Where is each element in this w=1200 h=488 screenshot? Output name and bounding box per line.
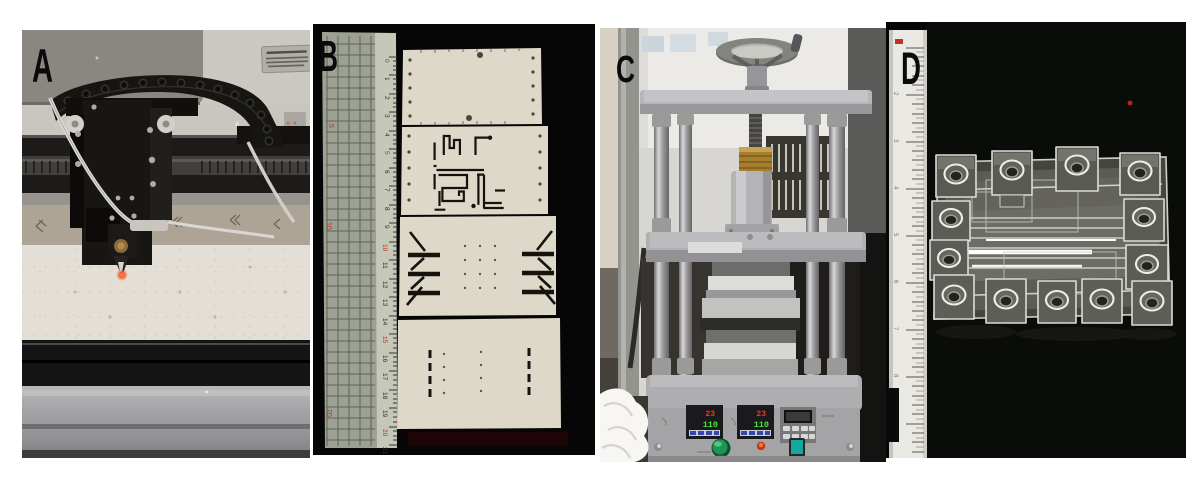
- svg-text:11: 11: [381, 262, 388, 269]
- svg-text:23: 23: [756, 410, 766, 419]
- svg-text:15: 15: [381, 336, 388, 344]
- svg-text:7: 7: [383, 188, 390, 192]
- svg-text:12: 12: [381, 281, 388, 289]
- svg-text:110: 110: [754, 420, 769, 430]
- svg-text:B: B: [319, 32, 338, 81]
- svg-text:1: 1: [383, 77, 390, 81]
- svg-text:16: 16: [381, 355, 388, 363]
- svg-text:0: 0: [383, 59, 390, 63]
- svg-text:10: 10: [325, 222, 332, 230]
- svg-text:23: 23: [705, 410, 715, 419]
- svg-text:14: 14: [381, 318, 388, 326]
- svg-text:4: 4: [383, 133, 390, 137]
- svg-text:20: 20: [381, 429, 388, 437]
- svg-text:8: 8: [383, 207, 390, 211]
- svg-text:18: 18: [381, 392, 388, 400]
- svg-text:19: 19: [381, 410, 388, 418]
- svg-text:9: 9: [383, 225, 390, 229]
- svg-text:3: 3: [383, 114, 390, 118]
- svg-text:5: 5: [383, 151, 390, 155]
- svg-text:5: 5: [327, 124, 334, 128]
- svg-text:6: 6: [383, 170, 390, 174]
- svg-text:C: C: [616, 49, 635, 91]
- svg-text:17: 17: [381, 373, 388, 381]
- svg-text:110: 110: [703, 420, 718, 430]
- svg-text:20: 20: [325, 409, 332, 417]
- svg-text:10: 10: [381, 244, 388, 252]
- svg-text:D: D: [901, 43, 921, 94]
- svg-text:A: A: [32, 39, 53, 92]
- svg-text:13: 13: [381, 299, 388, 307]
- svg-text:21: 21: [381, 447, 388, 455]
- svg-text:2: 2: [383, 96, 390, 100]
